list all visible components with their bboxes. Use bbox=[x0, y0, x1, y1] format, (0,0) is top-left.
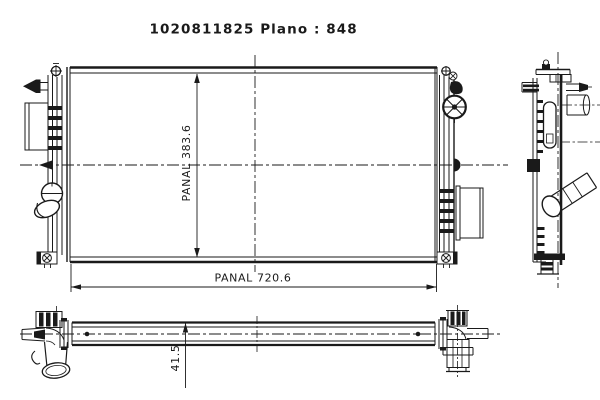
dim-tank-depth: 41.5 bbox=[169, 323, 188, 388]
drawing-page: 1020811825 Plano : 848 bbox=[0, 0, 600, 400]
front-view bbox=[20, 55, 508, 272]
side-clip bbox=[527, 159, 540, 172]
dim-core-height: PANAL 383.6 bbox=[180, 74, 200, 258]
top-left-ribbed-block bbox=[36, 306, 62, 328]
left-foot-bracket bbox=[37, 252, 57, 268]
right-foot-bracket bbox=[437, 252, 457, 268]
top-right-pipe bbox=[449, 327, 488, 339]
top-left-hook bbox=[32, 351, 40, 364]
side-filler-neck bbox=[560, 95, 600, 142]
dim-core-width: PANAL 720.6 bbox=[71, 264, 437, 292]
left-bolt-icon bbox=[50, 64, 62, 78]
core-width-label: PANAL 720.6 bbox=[215, 272, 292, 285]
left-drain-connector bbox=[23, 80, 48, 94]
left-hose-elbow bbox=[32, 183, 62, 221]
filler-cap-icon bbox=[443, 96, 466, 123]
side-left-connector bbox=[522, 83, 539, 93]
top-left-pipe bbox=[22, 328, 64, 345]
top-view bbox=[20, 305, 500, 380]
plano-number-text: Plano : 848 bbox=[260, 22, 358, 38]
side-bleed-pipe bbox=[566, 83, 592, 93]
left-tank-ribs bbox=[49, 106, 62, 150]
side-hose-pipe bbox=[538, 171, 597, 220]
right-outlet-block bbox=[456, 186, 483, 240]
side-body bbox=[527, 74, 561, 265]
radiator-technical-drawing: 1020811825 Plano : 848 bbox=[0, 0, 600, 400]
right-tab bbox=[454, 159, 461, 172]
left-mount-block bbox=[25, 103, 48, 150]
side-top-cap bbox=[536, 60, 571, 82]
title-block: 1020811825 Plano : 848 bbox=[150, 22, 358, 38]
part-number-text: 1020811825 bbox=[150, 22, 255, 38]
side-view bbox=[522, 52, 600, 288]
core-height-label: PANAL 383.6 bbox=[180, 125, 193, 202]
right-tank-ribs bbox=[440, 189, 454, 233]
side-slot bbox=[544, 102, 557, 148]
tank-depth-label: 41.5 bbox=[169, 345, 182, 372]
bottom-header-bar bbox=[70, 257, 437, 262]
flow-arrow-icon bbox=[39, 161, 52, 170]
top-header-bar bbox=[70, 68, 437, 74]
